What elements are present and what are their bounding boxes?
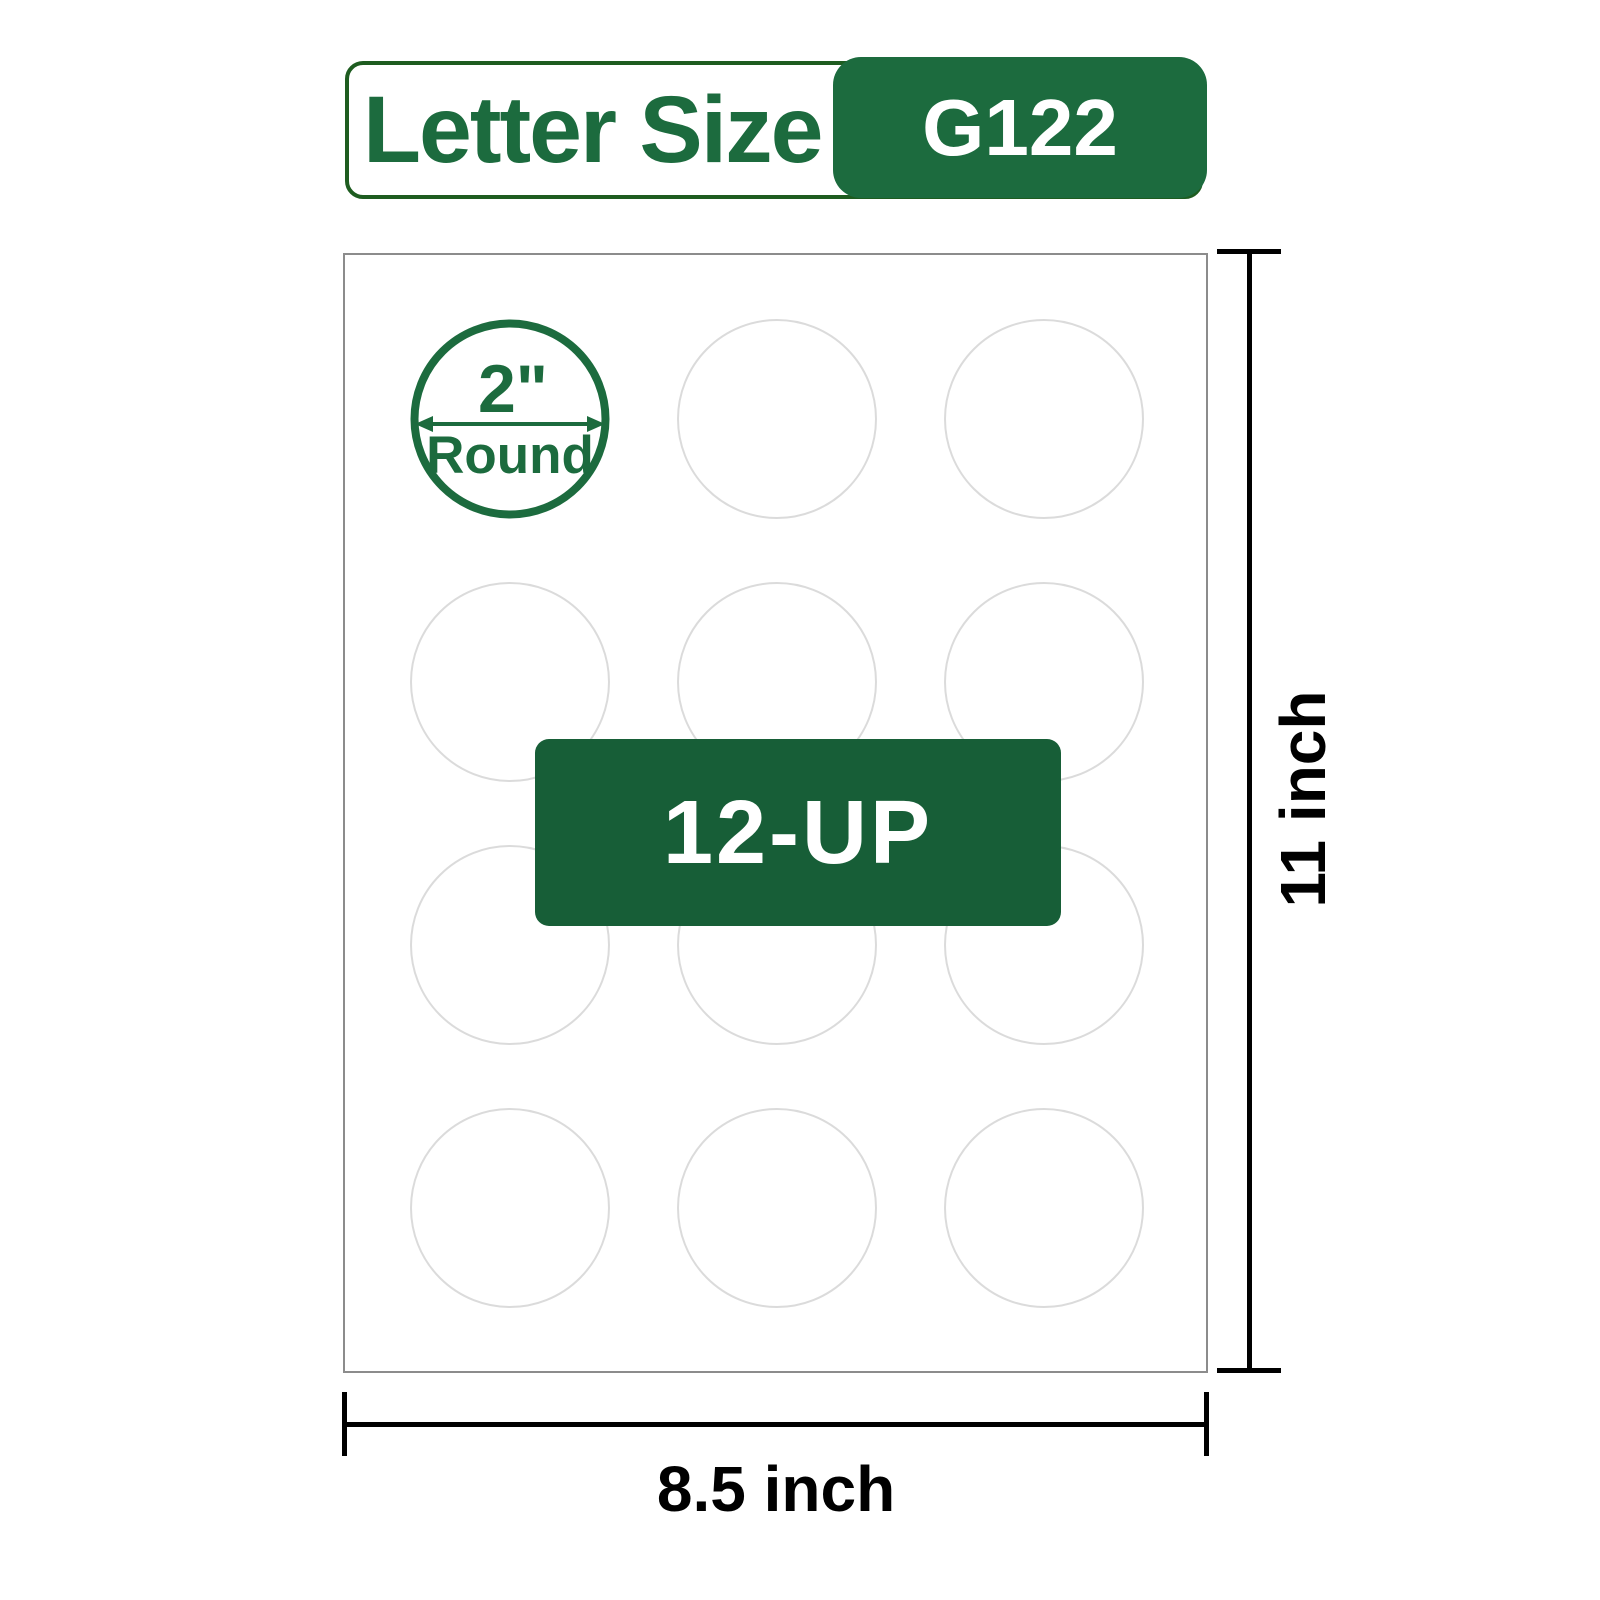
product-code-pill: G122 [833,57,1207,198]
label-circle [944,1108,1144,1308]
labels-per-sheet-badge: 12-UP [535,739,1061,926]
label-circle [677,1108,877,1308]
paper-size-label: Letter Size [349,83,821,178]
labels-per-sheet-label: 12-UP [663,788,933,878]
label-circle [677,319,877,519]
height-dimension-cap-top [1217,249,1281,254]
width-dimension-line [344,1422,1208,1427]
label-circle [944,319,1144,519]
sheet-width-label: 8.5 inch [344,1452,1208,1526]
height-dimension-cap-bottom [1217,1368,1281,1373]
label-size-spec-circle: 2" Round [410,319,610,519]
height-dimension-line [1247,251,1252,1371]
label-sheet: 2" Round 12-UP [343,253,1208,1373]
header-badge: Letter Size G122 [345,57,1207,199]
label-shape-text: Round [426,426,594,485]
label-diameter-text: 2" [478,351,548,427]
width-dimension-cap-left [342,1392,347,1456]
sheet-height-label: 11 inch [1266,691,1340,908]
product-code-label: G122 [922,88,1118,168]
label-size-spec-graphic: 2" Round [410,319,610,519]
label-circle [410,1108,610,1308]
width-dimension-cap-right [1204,1392,1209,1456]
